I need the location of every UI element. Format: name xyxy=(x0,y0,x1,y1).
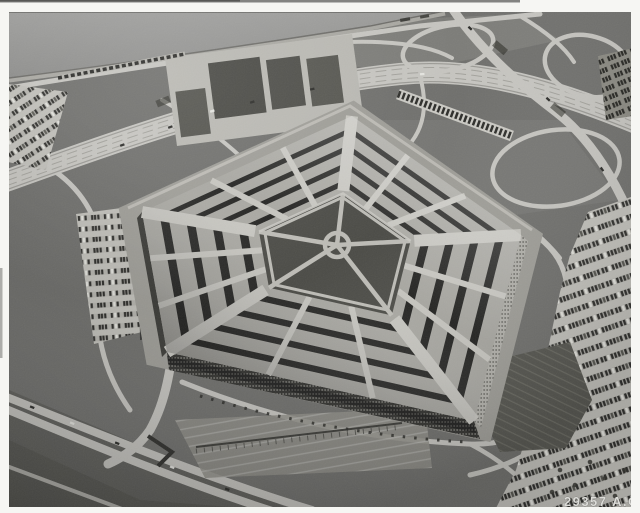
film-grain xyxy=(9,12,631,507)
scan-edge-dark xyxy=(0,0,240,2)
photo-content: 29357 A.C. xyxy=(0,8,640,513)
scanned-photo: 29357 A.C. xyxy=(0,0,640,513)
scan-edge-mark xyxy=(0,268,3,358)
photo-id-label: 29357 A.C. xyxy=(564,494,640,509)
aerial-photograph: 29357 A.C. xyxy=(0,0,640,513)
